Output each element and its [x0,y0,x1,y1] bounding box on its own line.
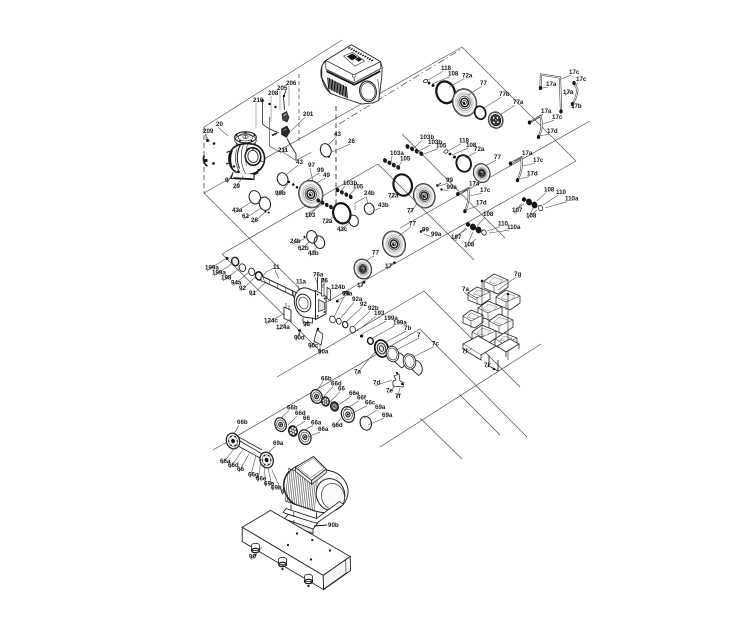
svg-text:77: 77 [494,154,501,161]
svg-text:110a: 110a [565,196,579,203]
svg-text:77a: 77a [513,99,524,106]
svg-text:17a: 17a [522,150,533,157]
svg-text:66: 66 [303,415,310,422]
svg-text:17a: 17a [546,81,557,88]
svg-text:43: 43 [296,159,303,166]
svg-text:17c: 17c [480,187,491,194]
svg-text:92: 92 [360,301,367,308]
svg-text:108: 108 [544,187,555,194]
svg-text:77b: 77b [499,91,510,98]
svg-text:206: 206 [286,80,297,87]
svg-text:17: 17 [385,263,392,270]
svg-text:9: 9 [225,177,229,184]
svg-text:11a: 11a [296,279,307,286]
svg-text:91: 91 [249,290,256,297]
svg-text:43b: 43b [308,250,319,257]
svg-text:108: 108 [464,242,475,249]
svg-text:7: 7 [417,332,421,339]
svg-text:66b: 66b [237,419,248,426]
svg-text:17d: 17d [476,200,487,207]
svg-text:77: 77 [407,208,414,215]
svg-text:103: 103 [305,212,316,219]
svg-text:108: 108 [483,211,494,218]
svg-text:209: 209 [203,128,214,135]
svg-text:26: 26 [348,138,355,145]
svg-text:201: 201 [303,111,314,118]
svg-text:72a: 72a [322,218,333,225]
svg-text:90a: 90a [318,349,329,356]
svg-text:105: 105 [353,184,364,191]
svg-text:99a: 99a [447,184,458,191]
svg-text:7i: 7i [484,362,489,369]
svg-text:7e: 7e [386,388,393,395]
svg-text:108: 108 [448,71,459,78]
svg-text:99a: 99a [431,231,442,238]
svg-text:99: 99 [422,227,429,234]
svg-text:108: 108 [526,213,537,220]
svg-text:105: 105 [436,143,447,150]
svg-text:77: 77 [372,250,379,257]
svg-text:66a: 66a [318,426,329,433]
svg-text:110a: 110a [507,224,521,231]
svg-text:7f: 7f [462,348,468,355]
svg-text:26: 26 [251,217,258,224]
svg-text:90: 90 [249,554,256,561]
svg-text:17c: 17c [576,76,587,83]
svg-text:17c: 17c [552,114,563,121]
svg-text:17c: 17c [569,69,580,76]
svg-text:69a: 69a [273,440,284,447]
svg-text:20: 20 [216,121,223,128]
svg-text:72a: 72a [388,193,399,200]
svg-text:92: 92 [239,285,246,292]
svg-text:17a: 17a [563,89,574,96]
svg-text:43b: 43b [378,202,389,209]
svg-text:29: 29 [233,183,240,190]
svg-text:17a: 17a [541,108,552,115]
svg-text:77: 77 [480,80,487,87]
svg-text:17c: 17c [533,157,544,164]
svg-text:124a: 124a [276,324,290,331]
svg-text:99b: 99b [275,190,286,197]
svg-text:24b: 24b [364,190,375,197]
svg-text:69a: 69a [382,412,393,419]
svg-text:77: 77 [409,221,416,228]
svg-text:90b: 90b [328,522,339,529]
svg-text:17a: 17a [469,181,480,188]
svg-text:211: 211 [278,147,289,154]
svg-text:66: 66 [237,466,244,473]
svg-text:66d: 66d [332,422,343,429]
svg-text:97: 97 [308,162,315,169]
svg-text:105: 105 [400,156,411,163]
svg-text:76: 76 [321,278,328,285]
svg-text:7g: 7g [514,271,521,278]
svg-text:72a: 72a [462,73,473,80]
svg-text:7d: 7d [373,380,380,387]
svg-text:17b: 17b [571,103,582,110]
svg-text:69a: 69a [375,404,386,411]
svg-text:11: 11 [273,264,280,271]
svg-text:99: 99 [446,177,453,184]
svg-text:7c: 7c [432,341,439,348]
svg-text:24b: 24b [290,238,301,245]
svg-text:7b: 7b [404,325,411,332]
svg-text:43: 43 [334,131,341,138]
svg-text:17d: 17d [547,128,558,135]
svg-text:17d: 17d [527,171,538,178]
svg-text:62: 62 [242,213,249,220]
svg-text:107: 107 [451,234,462,241]
svg-text:7f: 7f [395,393,401,400]
svg-text:43c: 43c [337,226,348,233]
svg-text:90d: 90d [294,335,305,342]
svg-text:49: 49 [323,172,330,179]
svg-text:7a: 7a [354,369,361,376]
svg-text:7a: 7a [462,286,469,293]
svg-text:66: 66 [338,386,345,393]
svg-text:72a: 72a [474,146,485,153]
svg-text:98: 98 [303,321,310,328]
